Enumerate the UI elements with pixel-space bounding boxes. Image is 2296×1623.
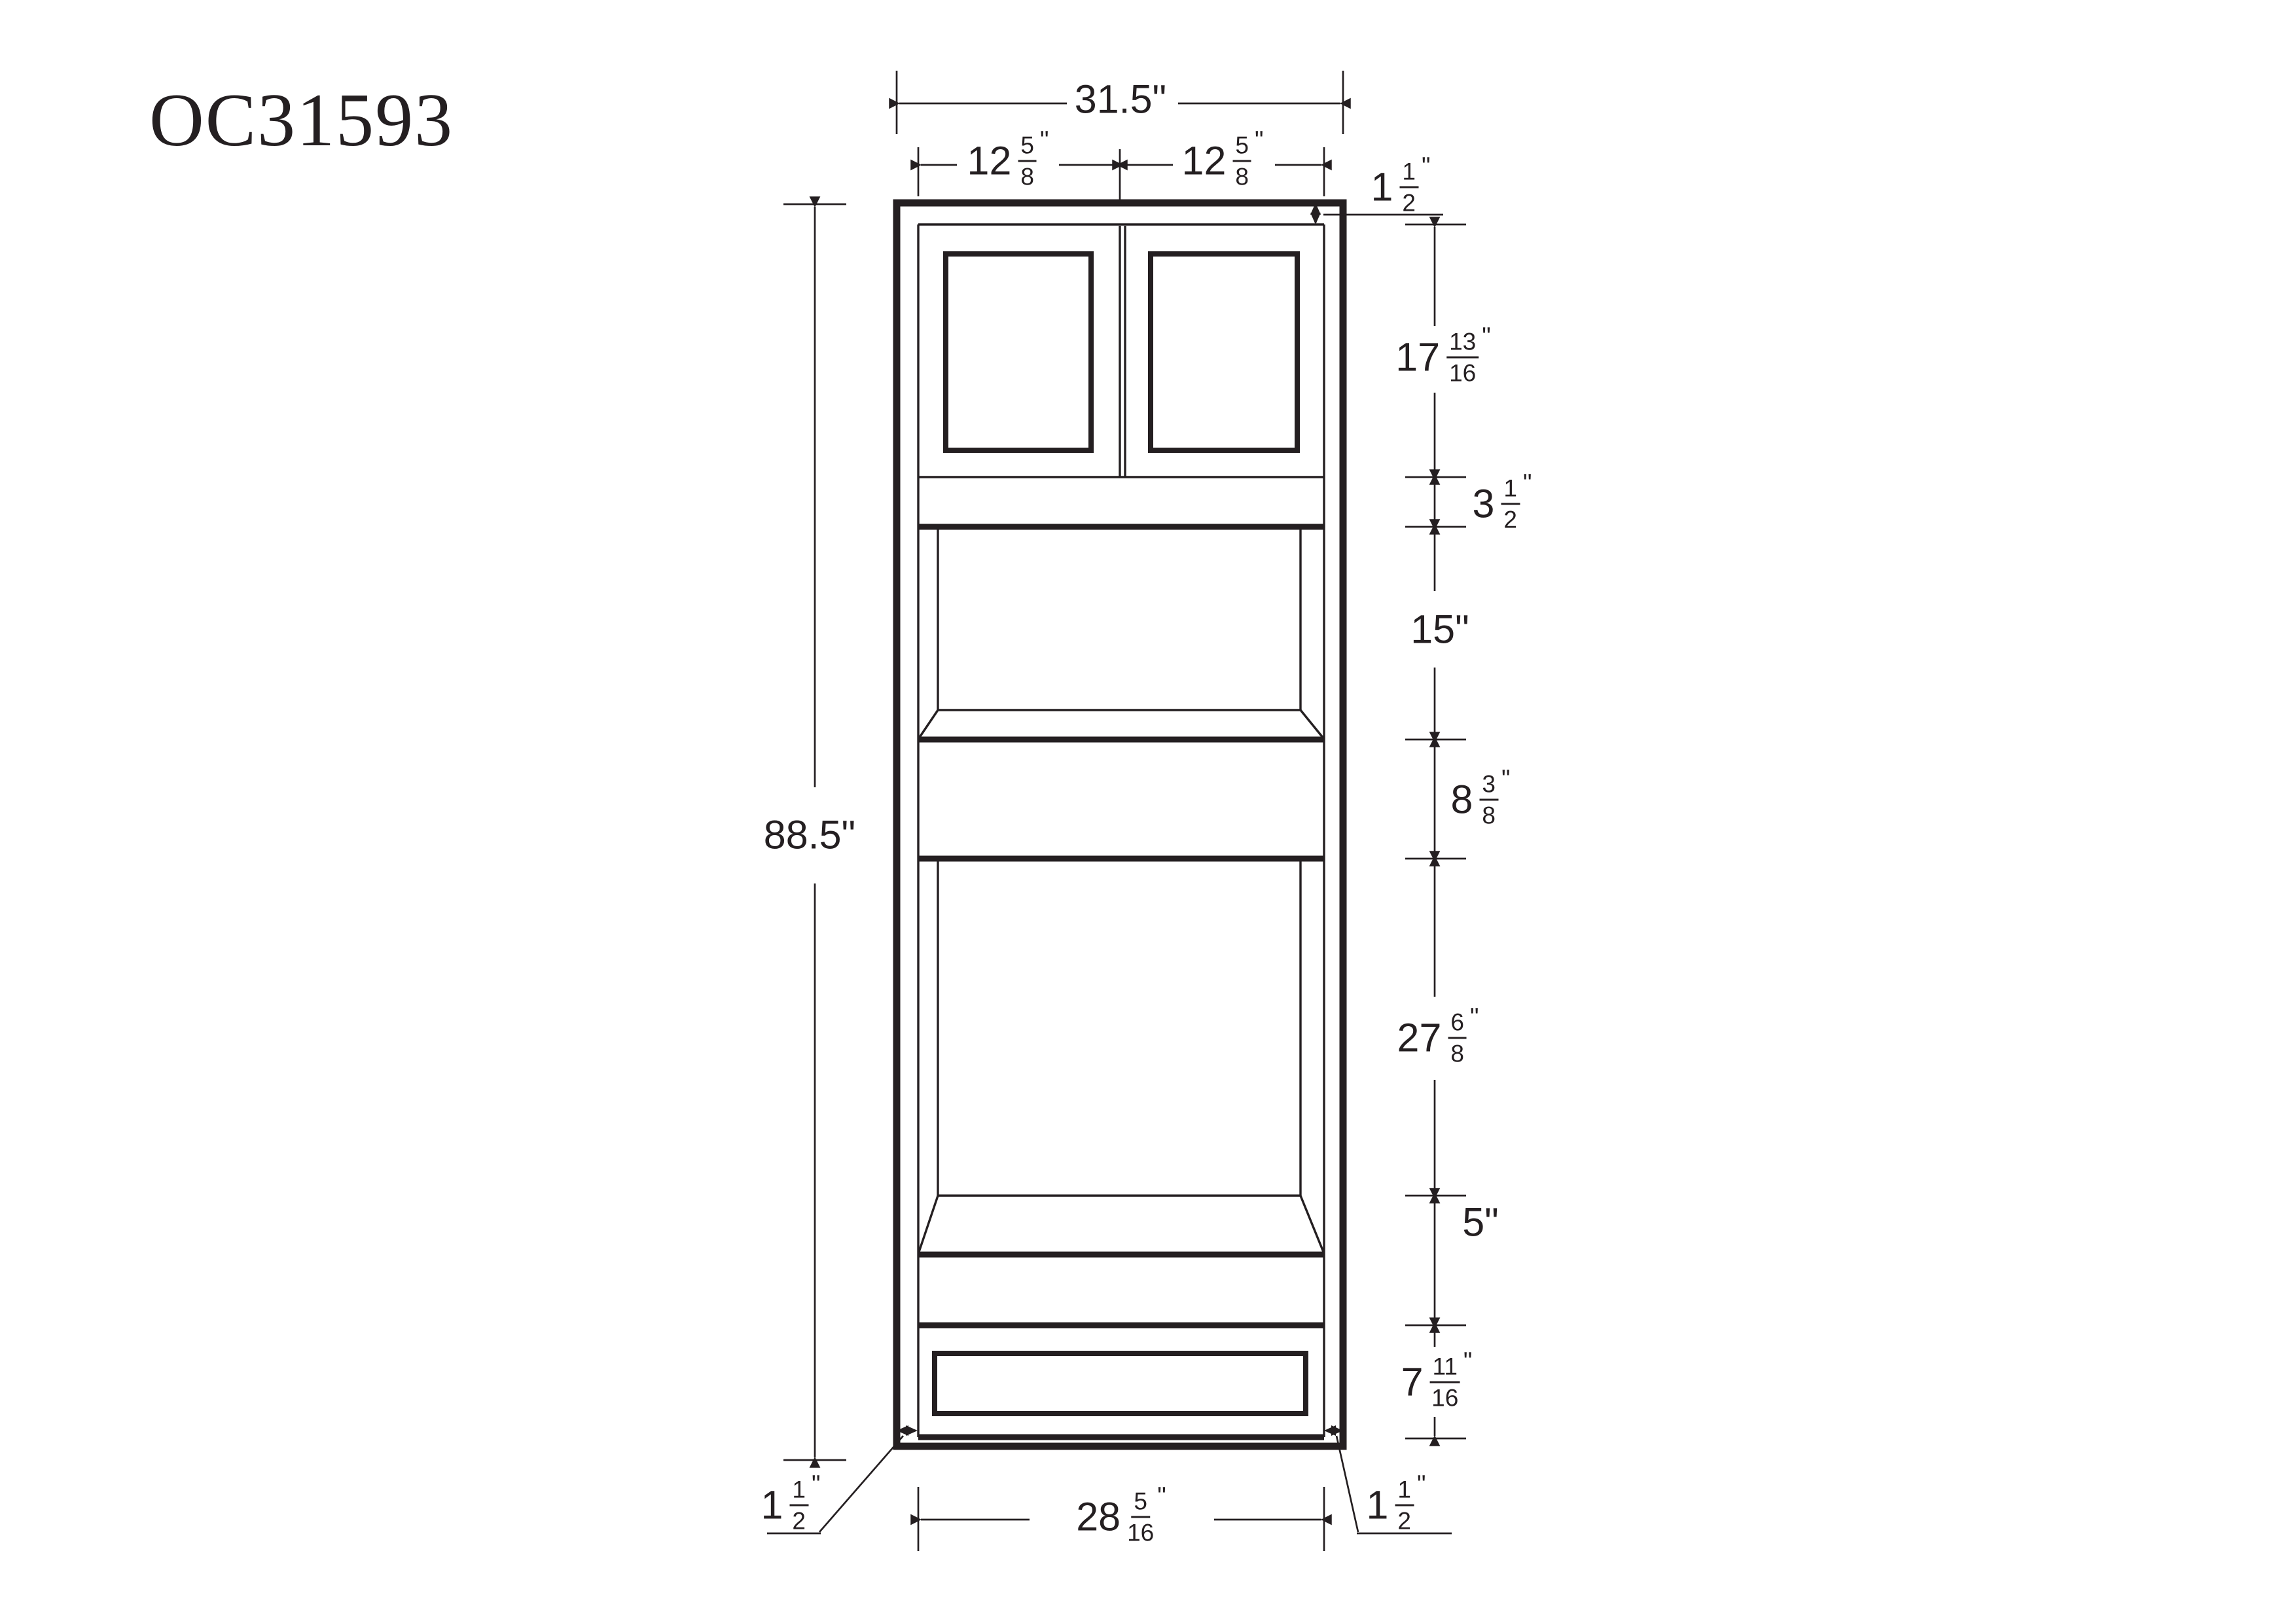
right-door-panel <box>1151 254 1297 450</box>
dim-middle-drawer-height: 8 3 8 " <box>1450 772 1510 828</box>
fraction: 1 2 <box>1501 476 1520 532</box>
dim-chain-ticks <box>1405 224 1466 1438</box>
dim-overall-width: 31.5" <box>1075 80 1166 120</box>
dim-lower-band-height: 5" <box>1462 1203 1499 1243</box>
microwave-opening <box>919 529 1323 738</box>
dim-upper-door-height: 17 13 16 " <box>1395 330 1491 385</box>
bottom-drawer-front <box>935 1353 1306 1414</box>
cabinet-line-drawing <box>0 0 2296 1623</box>
dim-right-door-width: 12 5 8 " <box>1182 134 1264 189</box>
fraction: 5 16 <box>1127 1489 1154 1545</box>
left-door-panel <box>946 254 1091 450</box>
fraction: 11 16 <box>1430 1355 1460 1410</box>
fraction: 6 8 <box>1448 1010 1467 1066</box>
dim-bottom-left-stile-width: 1 1 2 " <box>761 1478 820 1533</box>
dim-left-door-width: 12 5 8 " <box>967 134 1049 189</box>
cabinet-spec-sheet: OC31593 31.5" 12 5 8 " 12 5 8 " 1 1 2 " … <box>0 0 2296 1623</box>
dim-overall-width-value: 31.5" <box>1075 80 1166 120</box>
dim-bottom-drawer-height: 7 11 16 " <box>1401 1355 1473 1410</box>
fraction: 1 2 <box>789 1478 808 1533</box>
fraction: 13 16 <box>1446 330 1479 385</box>
dim-mid-rail-height: 3 1 2 " <box>1472 476 1532 532</box>
fraction: 1 2 <box>1395 1478 1414 1533</box>
dim-bottom-opening-width: 28 5 16 " <box>1076 1489 1166 1545</box>
oven-opening <box>919 861 1323 1252</box>
drawing-title: OC31593 <box>149 77 454 164</box>
dim-bottom-right-stile-width: 1 1 2 " <box>1366 1478 1426 1533</box>
fraction: 1 2 <box>1399 160 1418 215</box>
dim-oven-opening-height: 27 6 8 " <box>1397 1010 1479 1066</box>
fraction: 3 8 <box>1479 772 1498 828</box>
fraction: 5 8 <box>1232 134 1251 189</box>
cabinet-outline <box>897 203 1343 1446</box>
fraction: 5 8 <box>1018 134 1037 189</box>
front-rails <box>918 527 1324 1437</box>
dim-microwave-opening-height: 15" <box>1410 610 1469 650</box>
dim-overall-height: 88.5" <box>764 815 855 855</box>
dim-top-rail-height: 1 1 2 " <box>1371 160 1430 215</box>
upper-doors <box>918 226 1324 477</box>
dimension-lines <box>767 71 1466 1551</box>
